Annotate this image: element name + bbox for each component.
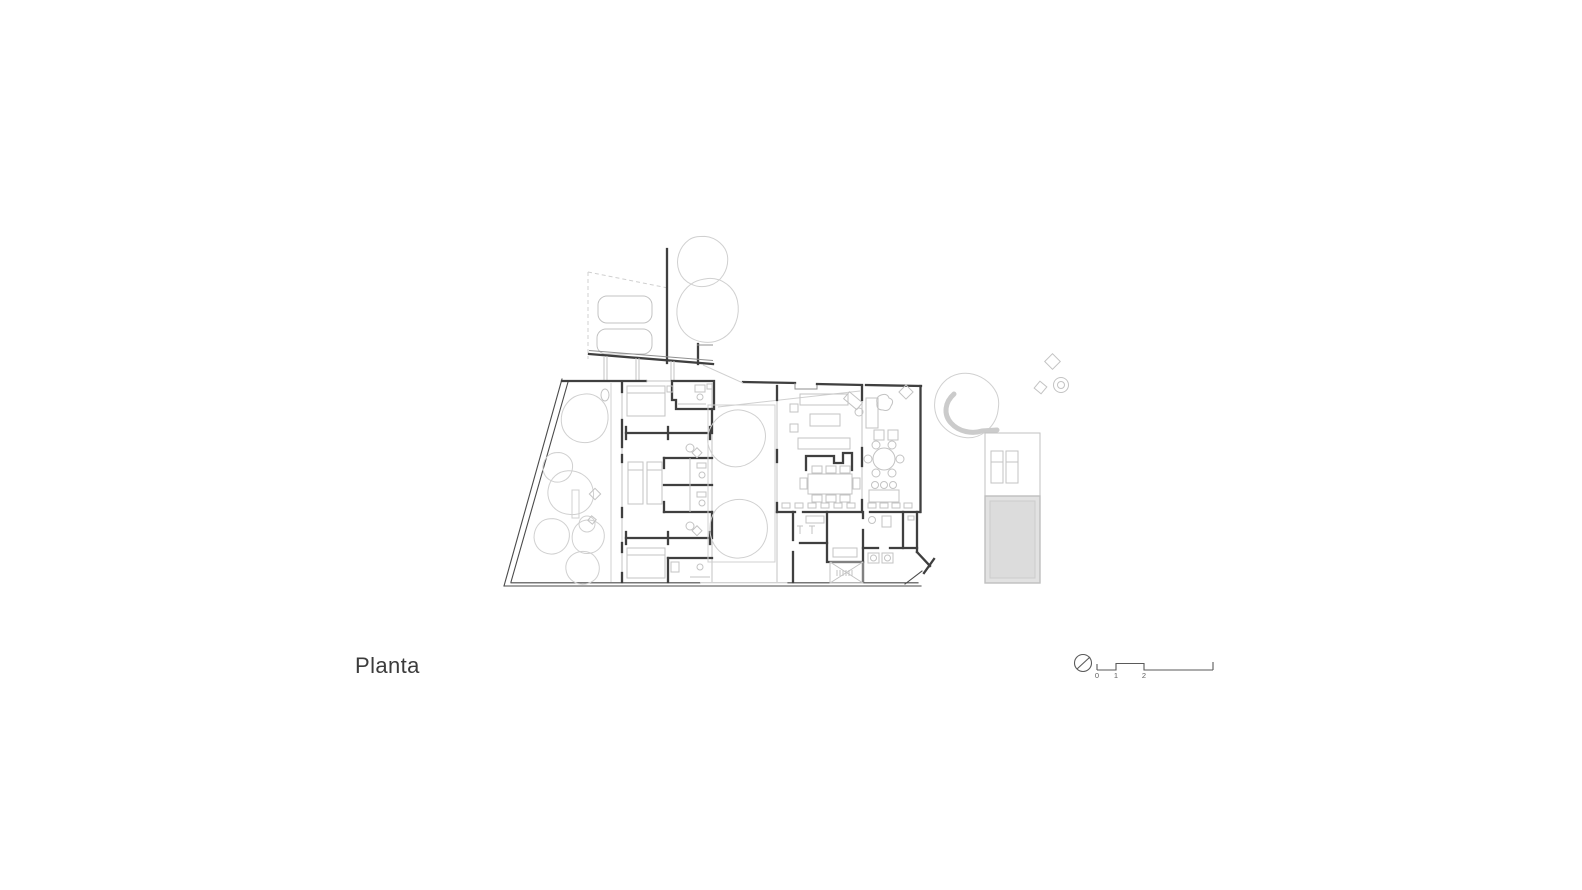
bed-icon [627, 386, 665, 416]
floor-plan-sheet: 0 1 2 Planta [0, 0, 1582, 890]
car-outline [597, 329, 652, 354]
window-mullions [782, 503, 912, 508]
scale-label-2: 2 [1142, 671, 1146, 680]
planter-icon [866, 398, 878, 428]
tree-icon [560, 545, 605, 590]
plant-icon [686, 522, 694, 530]
tree-icon [561, 394, 608, 443]
sofa-icon [800, 394, 848, 405]
rock-icon [1045, 354, 1061, 370]
fireplace-icon [806, 453, 852, 470]
service-rooms [777, 512, 920, 583]
plant-icon [686, 444, 694, 452]
kitchen-island-icon [833, 548, 857, 557]
tree-icon [534, 519, 569, 554]
bed-icon [628, 462, 643, 504]
floor-plan-drawing: 0 1 2 [0, 0, 1582, 890]
living-dining-wing [777, 385, 913, 582]
garden-courtyard [534, 383, 611, 591]
tree-icon [572, 520, 604, 553]
drawing-title: Planta [355, 653, 420, 679]
firepit-icon [1054, 378, 1069, 393]
car-outline [598, 296, 652, 323]
pool-zone [929, 354, 1068, 583]
scale-label-1: 1 [1114, 671, 1118, 680]
rock-icon [589, 488, 600, 499]
scale-label-0: 0 [1095, 671, 1099, 680]
bed-icon [627, 548, 665, 578]
dining-table-icon [808, 474, 852, 494]
lounge-chair-icon [877, 394, 893, 410]
coffee-table-icon [810, 414, 840, 426]
tree-icon [677, 278, 738, 342]
curved-bench-icon [946, 394, 997, 432]
round-table-icon [873, 448, 895, 470]
bedroom-wing [622, 383, 712, 582]
bed-icon [647, 462, 662, 504]
rock-icon [1034, 381, 1047, 394]
sofa-icon [798, 438, 850, 449]
bar-counter-icon [869, 490, 899, 502]
pool-deck [985, 433, 1040, 496]
carport-area [588, 236, 738, 381]
tree-icon [548, 471, 594, 515]
tree-icon [543, 452, 573, 482]
rock-icon [899, 385, 913, 399]
planter-icon [601, 389, 609, 401]
scale-bar: 0 1 2 [1075, 655, 1214, 681]
